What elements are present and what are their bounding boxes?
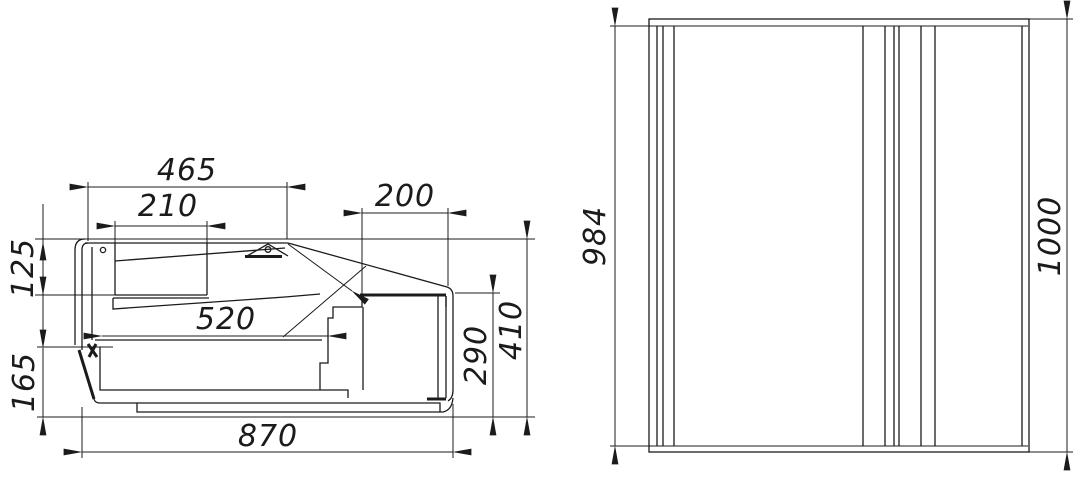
dim-290: 290 (459, 325, 494, 385)
dim-125: 125 (6, 238, 41, 298)
extension-lines-left-view (35, 182, 535, 458)
front-view: 984 1000 (578, 19, 1073, 452)
cabinet-outline (75, 239, 453, 412)
dim-165: 165 (7, 352, 42, 412)
dim-200: 200 (375, 179, 435, 214)
dimensions-left-view: 465 210 200 520 870 125 165 290 410 (6, 153, 529, 454)
dimensions-front-view: 984 1000 (578, 19, 1068, 452)
dim-1000: 1000 (1033, 196, 1068, 276)
side-section-view: 465 210 200 520 870 125 165 290 410 (6, 153, 535, 458)
dim-984: 984 (578, 206, 613, 266)
interior-detail (88, 243, 446, 399)
dim-465: 465 (157, 153, 217, 188)
front-outline (610, 19, 1073, 452)
drawing-sheet: 465 210 200 520 870 125 165 290 410 (0, 0, 1088, 478)
dim-520: 520 (196, 302, 256, 337)
dim-410: 410 (494, 300, 529, 360)
technical-drawing: 465 210 200 520 870 125 165 290 410 (0, 0, 1088, 478)
panel-lines (657, 26, 1022, 446)
dim-870: 870 (238, 419, 298, 454)
dim-210: 210 (138, 189, 198, 224)
